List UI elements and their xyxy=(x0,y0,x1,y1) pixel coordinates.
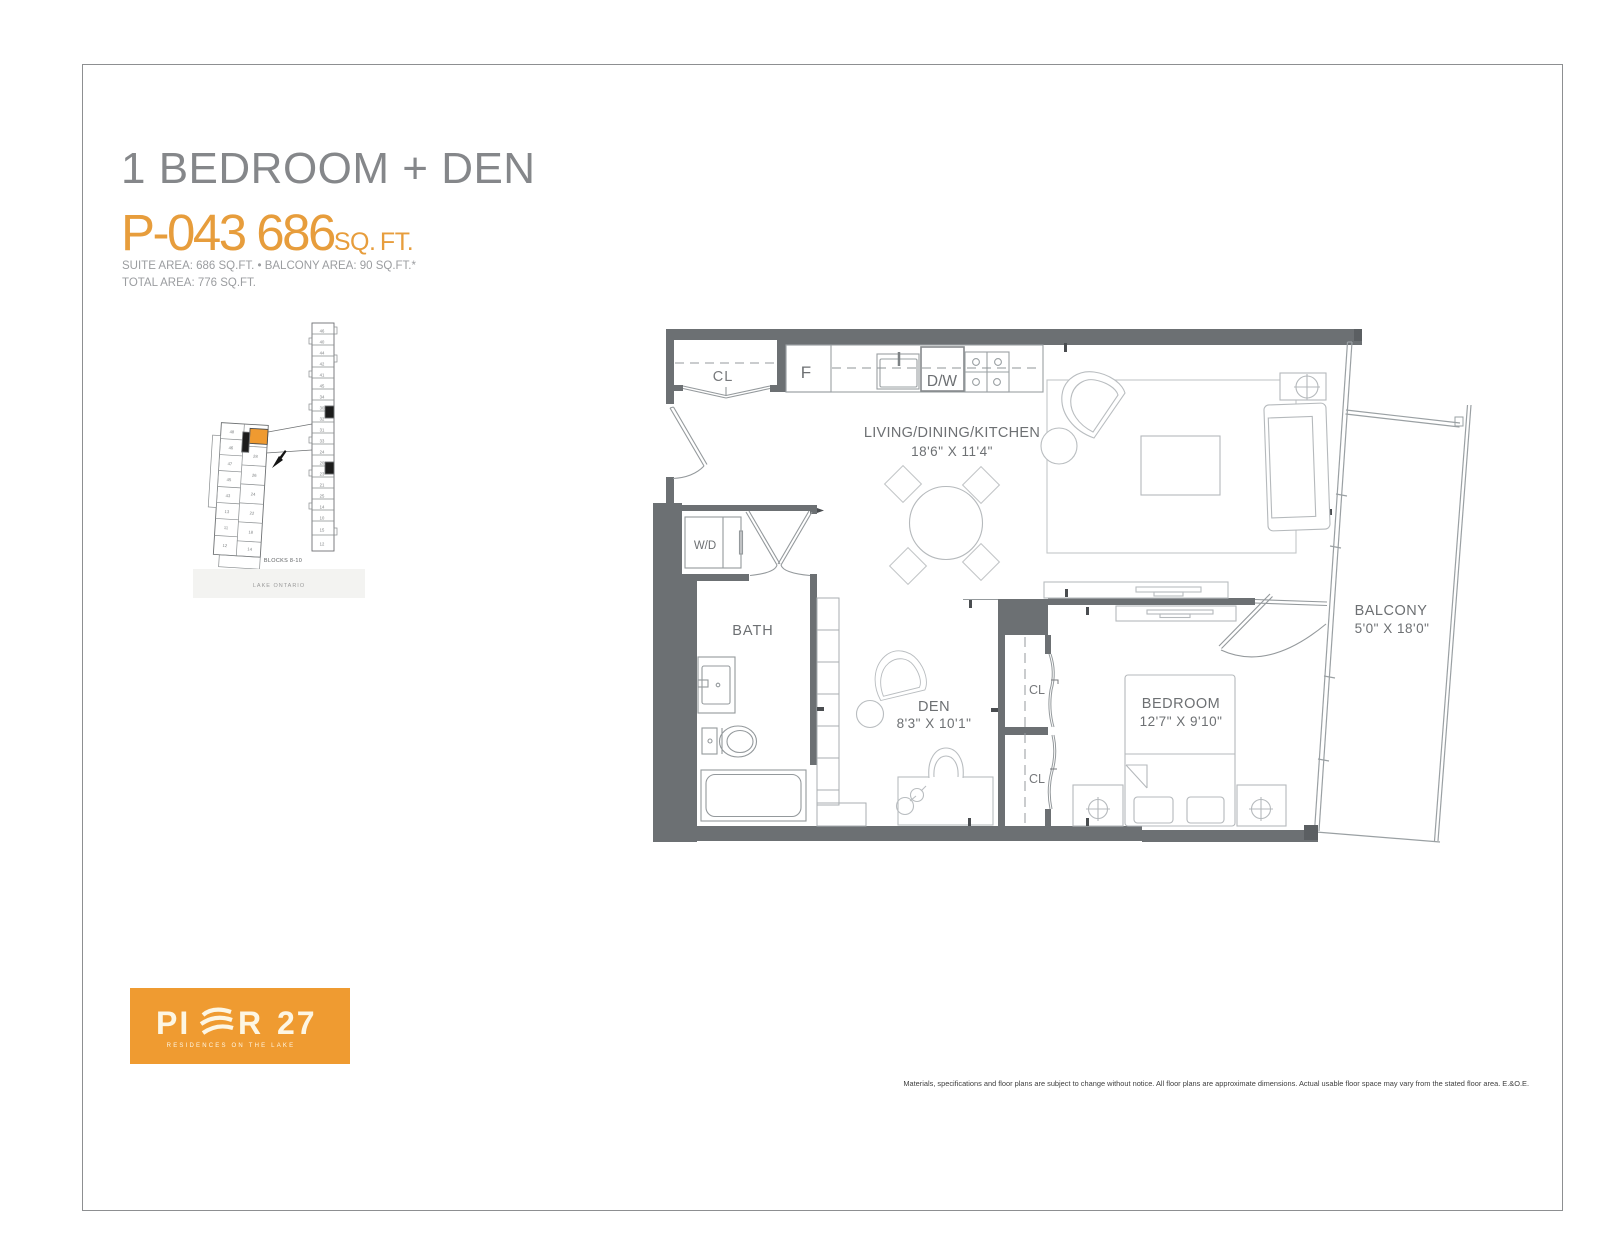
svg-text:5'0" X 18'0": 5'0" X 18'0" xyxy=(1355,621,1430,636)
svg-text:34: 34 xyxy=(320,395,325,400)
svg-text:20: 20 xyxy=(320,461,325,466)
svg-text:LAKE ONTARIO: LAKE ONTARIO xyxy=(253,583,305,589)
svg-text:27: 27 xyxy=(277,1005,317,1041)
svg-text:BALCONY: BALCONY xyxy=(1355,603,1428,619)
svg-text:31: 31 xyxy=(320,428,325,433)
svg-text:BATH: BATH xyxy=(732,623,774,639)
svg-text:W/D: W/D xyxy=(694,540,716,552)
svg-text:CL: CL xyxy=(1029,772,1045,786)
svg-text:41: 41 xyxy=(320,373,325,378)
svg-text:30: 30 xyxy=(320,406,325,411)
svg-text:D/W: D/W xyxy=(927,373,958,390)
svg-text:BLOCKS 8-10: BLOCKS 8-10 xyxy=(264,558,302,564)
svg-text:25: 25 xyxy=(320,494,325,499)
svg-text:40: 40 xyxy=(320,340,325,345)
svg-text:15: 15 xyxy=(320,528,325,533)
svg-text:14: 14 xyxy=(320,505,325,510)
svg-text:CL: CL xyxy=(713,369,734,385)
svg-text:RESIDENCES ON THE LAKE: RESIDENCES ON THE LAKE xyxy=(167,1043,296,1049)
svg-text:44: 44 xyxy=(320,351,325,356)
svg-text:8'3" X 10'1": 8'3" X 10'1" xyxy=(897,716,972,731)
svg-text:12: 12 xyxy=(320,542,325,547)
svg-text:12'7" X 9'10": 12'7" X 9'10" xyxy=(1140,714,1223,729)
svg-text:24: 24 xyxy=(320,450,325,455)
svg-text:R: R xyxy=(238,1005,263,1041)
svg-text:CL: CL xyxy=(1029,683,1045,697)
svg-text:23: 23 xyxy=(320,472,325,477)
svg-text:F: F xyxy=(801,363,811,382)
svg-text:42: 42 xyxy=(320,362,325,367)
svg-text:DEN: DEN xyxy=(918,699,950,715)
svg-text:46: 46 xyxy=(320,329,325,334)
svg-text:PI: PI xyxy=(156,1005,190,1041)
svg-text:33: 33 xyxy=(320,439,325,444)
svg-text:LIVING/DINING/KITCHEN: LIVING/DINING/KITCHEN xyxy=(864,425,1040,441)
svg-text:45: 45 xyxy=(320,384,325,389)
svg-text:BEDROOM: BEDROOM xyxy=(1142,696,1220,712)
svg-text:10: 10 xyxy=(320,516,325,521)
svg-text:21: 21 xyxy=(320,483,325,488)
svg-text:32: 32 xyxy=(320,417,325,422)
svg-text:18'6" X 11'4": 18'6" X 11'4" xyxy=(911,444,993,459)
